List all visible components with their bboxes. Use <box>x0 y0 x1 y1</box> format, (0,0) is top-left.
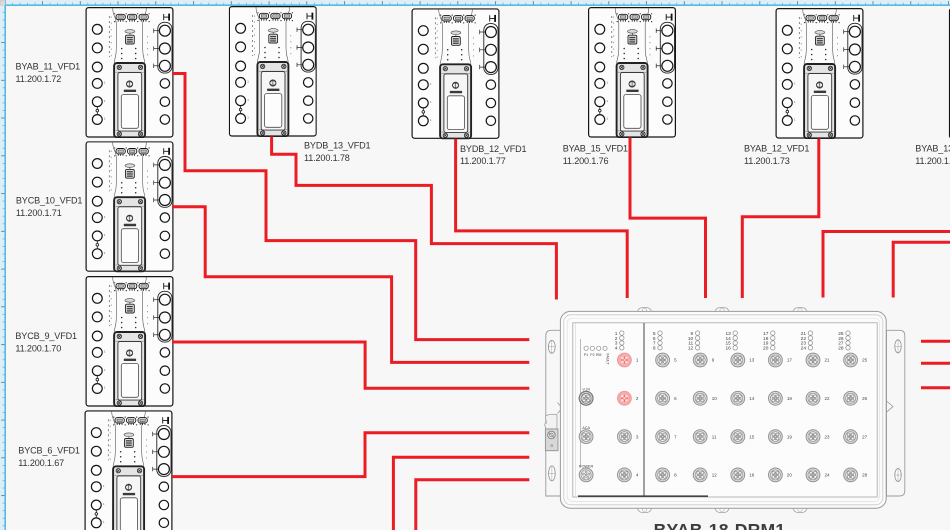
svg-text:20: 20 <box>763 346 769 352</box>
svg-text:11.200.1.76: 11.200.1.76 <box>563 156 609 166</box>
svg-text:28: 28 <box>838 346 844 352</box>
svg-text:14: 14 <box>749 396 755 401</box>
svg-text:11.200.1.73: 11.200.1.73 <box>744 156 790 166</box>
svg-text:24: 24 <box>825 473 831 478</box>
svg-text:12: 12 <box>712 473 718 478</box>
svg-text:4: 4 <box>615 346 618 352</box>
svg-text:15: 15 <box>749 434 755 439</box>
svg-text:26: 26 <box>862 396 868 401</box>
svg-text:18: 18 <box>787 396 793 401</box>
svg-text:FAULT: FAULT <box>605 354 609 366</box>
svg-text:BYAB-18-DRM1: BYAB-18-DRM1 <box>654 520 786 530</box>
svg-text:BYDB_12_VFD1: BYDB_12_VFD1 <box>460 144 527 154</box>
svg-text:25: 25 <box>862 358 868 363</box>
svg-text:11.200.1.74: 11.200.1.74 <box>915 156 950 166</box>
svg-text:23: 23 <box>825 434 831 439</box>
svg-text:13: 13 <box>749 358 755 363</box>
svg-text:20: 20 <box>787 473 793 478</box>
svg-text:27: 27 <box>862 434 868 439</box>
svg-text:11.200.1.77: 11.200.1.77 <box>460 156 506 166</box>
svg-text:BYCB_9_VFD1: BYCB_9_VFD1 <box>15 331 77 341</box>
svg-text:22: 22 <box>825 396 831 401</box>
svg-text:11.200.1.67: 11.200.1.67 <box>18 458 64 468</box>
svg-text:BYCB_10_VFD1: BYCB_10_VFD1 <box>16 196 83 206</box>
svg-text:BYDB_13_VFD1: BYDB_13_VFD1 <box>304 141 371 151</box>
svg-text:19: 19 <box>787 434 793 439</box>
svg-text:11: 11 <box>712 434 717 439</box>
svg-text:17: 17 <box>787 358 793 363</box>
svg-text:16: 16 <box>725 346 731 352</box>
svg-text:21: 21 <box>825 358 831 363</box>
svg-text:24: 24 <box>801 346 807 352</box>
svg-text:10: 10 <box>712 396 718 401</box>
svg-text:12: 12 <box>688 346 694 352</box>
svg-text:BYCB_6_VFD1: BYCB_6_VFD1 <box>18 446 80 456</box>
svg-text:8: 8 <box>653 346 656 352</box>
svg-text:RM: RM <box>596 353 602 357</box>
svg-text:P1: P1 <box>584 353 588 357</box>
svg-text:11.200.1.78: 11.200.1.78 <box>304 153 350 163</box>
svg-text:BYAB_12_VFD1: BYAB_12_VFD1 <box>744 144 809 154</box>
svg-text:BYAB_11_VFD1: BYAB_11_VFD1 <box>16 61 81 71</box>
svg-text:11.200.1.72: 11.200.1.72 <box>16 74 62 84</box>
svg-text:11.200.1.70: 11.200.1.70 <box>15 344 61 354</box>
svg-text:BYAB_13_VFD1: BYAB_13_VFD1 <box>915 144 950 154</box>
svg-text:BYAB_15_VFD1: BYAB_15_VFD1 <box>563 144 628 154</box>
svg-text:16: 16 <box>749 473 755 478</box>
svg-text:28: 28 <box>862 473 868 478</box>
svg-text:P2: P2 <box>590 353 594 357</box>
svg-text:11.200.1.71: 11.200.1.71 <box>16 208 62 218</box>
